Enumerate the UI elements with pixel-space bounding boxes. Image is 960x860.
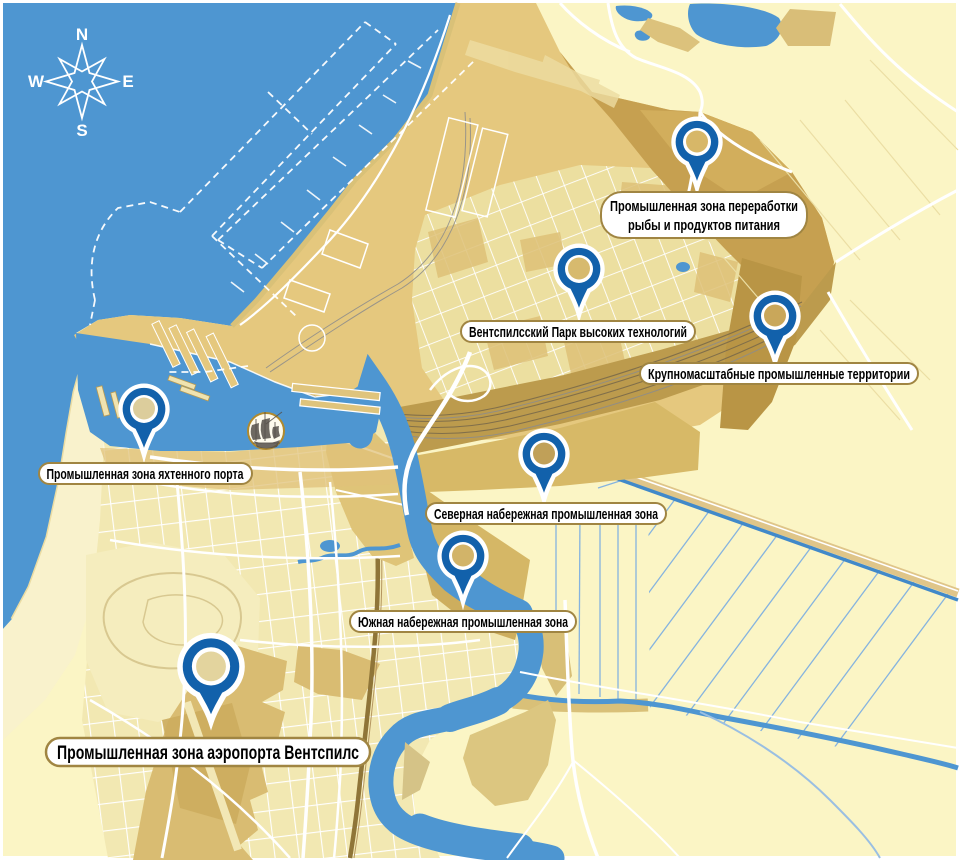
- svg-text:E: E: [122, 72, 133, 91]
- svg-text:Крупномасштабные промышленные: Крупномасштабные промышленные территории: [648, 367, 910, 383]
- svg-text:Вентспилсский Парк высоких тех: Вентспилсский Парк высоких технологий: [469, 325, 687, 341]
- svg-text:Промышленная зона яхтенного по: Промышленная зона яхтенного порта: [47, 467, 245, 483]
- svg-text:Промышленная зона переработки: Промышленная зона переработки: [610, 199, 798, 215]
- svg-text:рыбы и продуктов питания: рыбы и продуктов питания: [628, 218, 780, 234]
- svg-text:Промышленная зона аэропорта Ве: Промышленная зона аэропорта Вентспилс: [57, 742, 359, 764]
- svg-text:Северная набережная промышленн: Северная набережная промышленная зона: [434, 507, 659, 523]
- svg-text:W: W: [28, 72, 45, 91]
- svg-text:Южная набережная промышленная: Южная набережная промышленная зона: [358, 615, 569, 631]
- svg-text:N: N: [76, 25, 88, 44]
- svg-text:S: S: [76, 121, 87, 140]
